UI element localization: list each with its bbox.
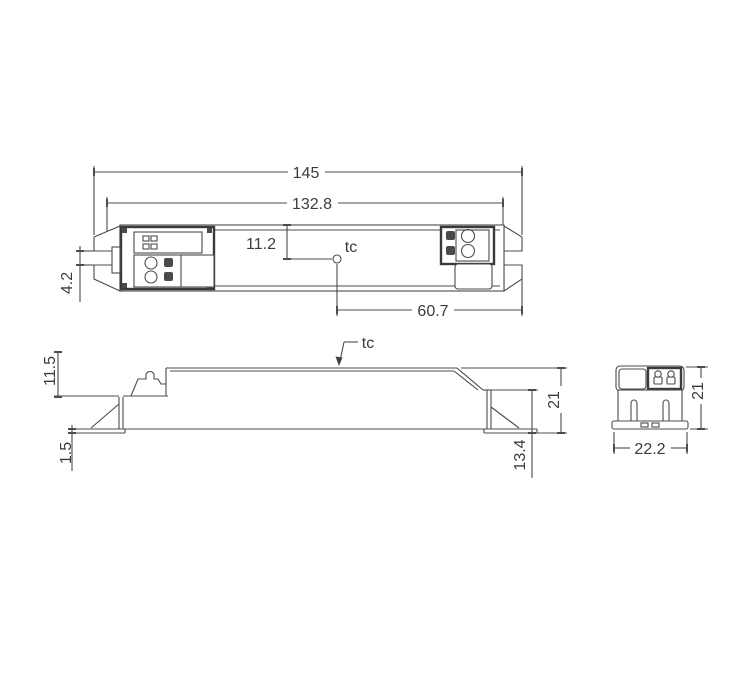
dim-overall-length-label: 145 xyxy=(293,165,320,182)
technical-drawing-page: 145 132.8 xyxy=(0,0,744,686)
dim-foot-thickness-label: 1.5 xyxy=(58,442,75,464)
dim-end-width-label: 22.2 xyxy=(634,441,665,458)
dim-step-height: 13.4 xyxy=(485,390,538,478)
end-view: 21 22.2 xyxy=(612,366,708,458)
dimensional-drawing: 145 132.8 xyxy=(0,0,744,686)
dim-slot-width-label: 4.2 xyxy=(59,272,76,294)
dim-end-height: 21 xyxy=(686,367,708,429)
dim-tc-horizontal-label: 60.7 xyxy=(417,303,448,320)
tc-label-side-view: tc xyxy=(362,335,374,352)
dim-side-height: 21 xyxy=(461,368,567,433)
dim-end-height-label: 21 xyxy=(690,382,707,400)
dim-foot-thickness: 1.5 xyxy=(58,425,76,471)
left-terminal-block xyxy=(112,227,214,289)
housing-outline-end-view xyxy=(612,366,688,429)
dim-body-length-label: 132.8 xyxy=(292,196,332,213)
housing-outline-side-view xyxy=(72,368,537,433)
dim-ledge-height: 11.5 xyxy=(42,352,119,397)
dim-end-width: 22.2 xyxy=(614,432,687,458)
top-view: 145 132.8 xyxy=(59,165,522,320)
dim-tc-vertical-label: 11.2 xyxy=(246,236,276,253)
tc-label-top-view: tc xyxy=(345,239,357,256)
dim-side-height-label: 21 xyxy=(546,391,563,409)
dim-step-height-label: 13.4 xyxy=(512,439,529,470)
side-view: tc 11.5 1.5 21 xyxy=(42,335,567,478)
dim-slot-width: 4.2 xyxy=(59,246,94,302)
tc-leader-side-view: tc xyxy=(336,335,375,366)
dim-ledge-height-label: 11.5 xyxy=(42,356,59,386)
